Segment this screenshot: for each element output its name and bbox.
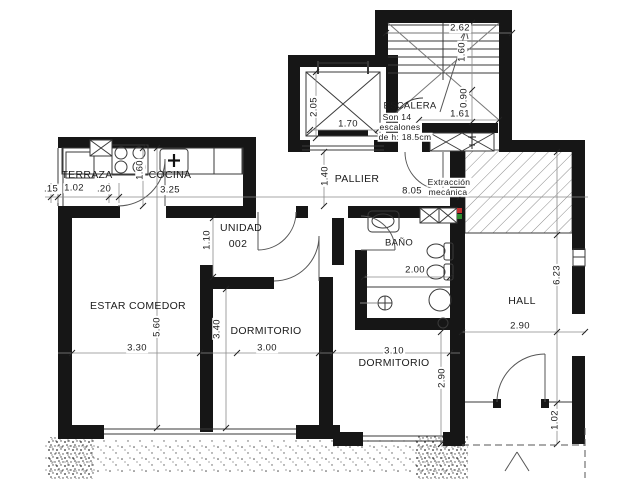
dim-stair-landing-depth: 0.90 xyxy=(459,87,469,109)
room-label-estar-comedor: ESTAR COMEDOR xyxy=(90,301,186,312)
dim-cocina-depth: 1.60 xyxy=(135,159,145,181)
dim-hall-width: 2.90 xyxy=(509,321,531,331)
dim-stair-width: 2.62 xyxy=(449,23,471,33)
dim-dorm2-depth: 2.90 xyxy=(437,367,447,389)
dim-hall-exit: 1.02 xyxy=(550,409,560,431)
dim-elevator-depth: 2.05 xyxy=(309,96,319,118)
extraction-note-line2: mecánica xyxy=(428,188,469,197)
dim-banio-width: 2.00 xyxy=(404,265,426,275)
room-label-banio: BAÑO xyxy=(385,238,413,248)
ground-texture xyxy=(45,435,468,479)
dim-left-offset: .15 xyxy=(43,184,59,194)
room-label-dormitorio-2: DORMITORIO xyxy=(358,358,429,369)
dim-cocina-width: 3.25 xyxy=(159,185,181,195)
extraction-note-line1: Extracción xyxy=(427,178,472,187)
dashed-lines xyxy=(462,428,585,478)
dim-estar-depth: 5.60 xyxy=(152,316,162,338)
dim-pallier-depth: 1.40 xyxy=(320,165,330,187)
dim-stair-flight: 1.60 xyxy=(457,41,467,63)
dim-estar-width: 3.30 xyxy=(126,343,148,353)
dim-vestibule-depth: 1.10 xyxy=(202,229,212,251)
hatch-extraction-shaft xyxy=(465,150,572,233)
stair-note-line2: escalones xyxy=(379,123,422,132)
stair-note-line1: Son 14 xyxy=(382,113,413,122)
room-label-terraza: TERRAZA xyxy=(61,170,112,181)
dim-stair-landing-width: 1.61 xyxy=(449,109,471,119)
dim-hall-depth: 6.23 xyxy=(552,264,562,286)
dim-divider: .20 xyxy=(96,184,112,194)
room-label-dormitorio-1: DORMITORIO xyxy=(230,326,301,337)
floor-plan-linework xyxy=(0,0,640,480)
unit-label-line1: UNIDAD xyxy=(220,223,262,234)
dim-dorm1-depth: 3.40 xyxy=(212,318,222,340)
dim-dorm2-width: 3.10 xyxy=(383,346,405,356)
section-mark xyxy=(505,452,529,471)
dim-dorm1-width: 3.00 xyxy=(256,343,278,353)
stair-note-line3: de h: 18.5cm xyxy=(378,133,433,142)
room-label-cocina: COCINA xyxy=(149,170,192,181)
room-label-pallier: PALLIER xyxy=(335,174,380,185)
floor-plan: TERRAZA COCINA PALLIER ESCALERA BAÑO EST… xyxy=(0,0,640,480)
room-label-hall: HALL xyxy=(508,296,535,307)
room-label-escalera: ESCALERA xyxy=(383,101,436,111)
dim-total-width: 8.05 xyxy=(401,186,423,196)
dim-terraza-width: 1.02 xyxy=(63,183,85,193)
unit-label-line2: 002 xyxy=(229,239,247,250)
dim-elevator-width: 1.70 xyxy=(337,119,359,129)
